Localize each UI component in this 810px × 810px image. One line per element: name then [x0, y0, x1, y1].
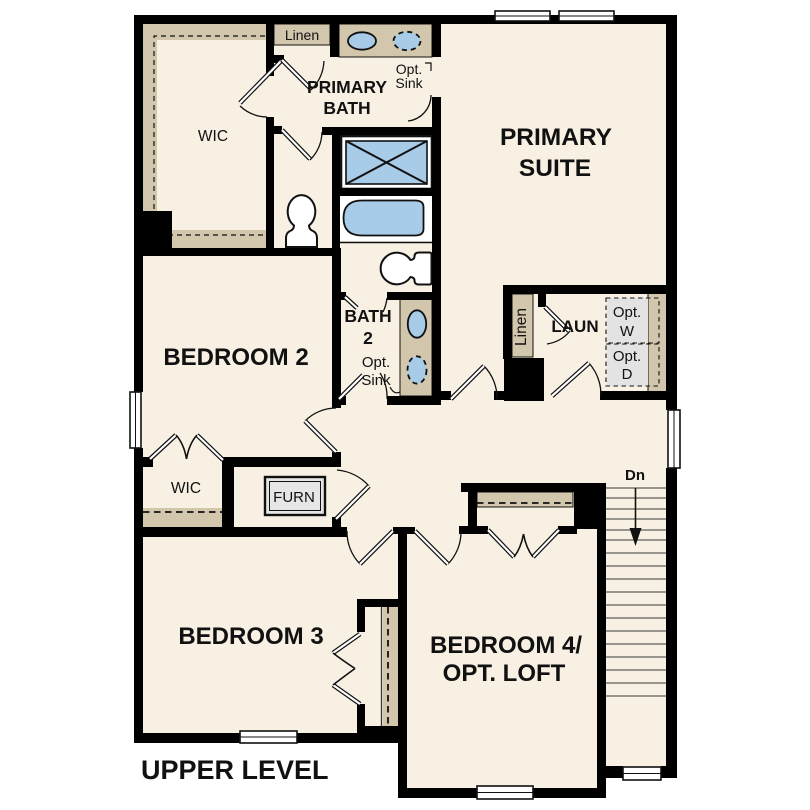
svg-text:W: W	[620, 323, 635, 340]
svg-text:Opt.: Opt.	[613, 304, 641, 321]
svg-text:FURN: FURN	[273, 489, 315, 506]
svg-text:2: 2	[363, 328, 373, 348]
svg-text:BEDROOM 3: BEDROOM 3	[178, 623, 323, 650]
svg-text:SUITE: SUITE	[519, 155, 591, 182]
svg-text:Linen: Linen	[285, 27, 319, 43]
svg-text:Dn: Dn	[625, 467, 645, 484]
svg-text:BEDROOM 4/: BEDROOM 4/	[430, 632, 582, 659]
svg-text:BATH: BATH	[344, 306, 391, 326]
svg-text:OPT. LOFT: OPT. LOFT	[443, 660, 566, 687]
svg-text:LAUN: LAUN	[551, 317, 598, 336]
svg-text:Sink: Sink	[395, 75, 423, 91]
svg-text:BATH: BATH	[323, 98, 370, 118]
svg-text:BEDROOM 2: BEDROOM 2	[163, 344, 308, 371]
svg-text:WIC: WIC	[171, 480, 201, 497]
svg-text:Opt.: Opt.	[613, 348, 641, 365]
svg-text:D: D	[622, 366, 633, 383]
svg-text:UPPER LEVEL: UPPER LEVEL	[141, 755, 329, 785]
svg-text:WIC: WIC	[198, 128, 228, 145]
svg-text:PRIMARY: PRIMARY	[500, 124, 612, 151]
svg-text:PRIMARY: PRIMARY	[307, 77, 387, 97]
svg-text:Opt.: Opt.	[362, 354, 390, 371]
svg-text:Sink: Sink	[361, 372, 391, 389]
svg-text:Linen: Linen	[513, 308, 530, 346]
